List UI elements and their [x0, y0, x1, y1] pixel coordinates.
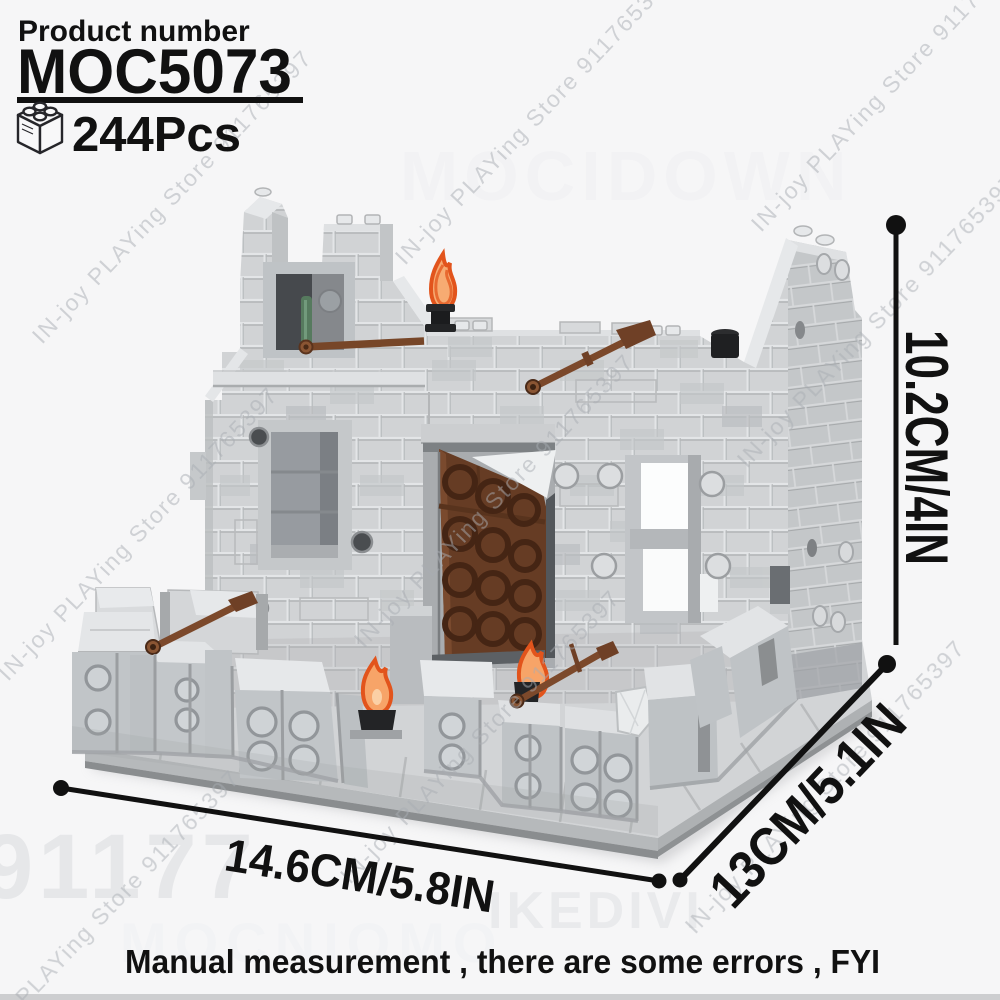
svg-text:Manual measurement , there are: Manual measurement , there are some erro…: [125, 943, 880, 980]
svg-text:244Pcs: 244Pcs: [72, 108, 241, 162]
svg-text:10.2CM/4IN: 10.2CM/4IN: [893, 330, 960, 565]
svg-text:MOC5073: MOC5073: [17, 37, 292, 107]
svg-text:IKEDIVI: IKEDIVI: [488, 882, 704, 940]
